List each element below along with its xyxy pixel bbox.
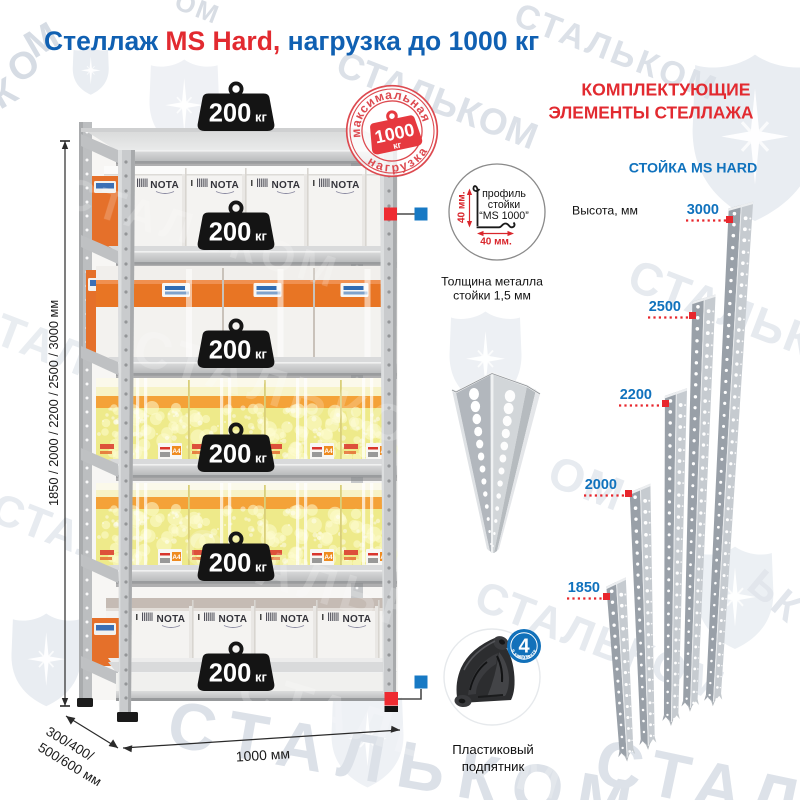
svg-text:3000: 3000 — [687, 202, 719, 218]
svg-text:2000: 2000 — [585, 477, 617, 493]
svg-text:стойки 1,5 мм: стойки 1,5 мм — [453, 289, 531, 303]
svg-text:200: 200 — [209, 441, 252, 469]
svg-text:NOTA: NOTA — [219, 614, 248, 625]
svg-text:2200: 2200 — [620, 387, 652, 403]
svg-text:40 мм.: 40 мм. — [480, 237, 512, 248]
svg-text:200: 200 — [209, 337, 252, 365]
svg-text:Стеллаж MS Hard, нагрузка до 1: Стеллаж MS Hard, нагрузка до 1000 кг — [44, 26, 539, 56]
svg-text:NOTA: NOTA — [150, 180, 179, 191]
svg-text:1000 мм: 1000 мм — [235, 745, 290, 764]
svg-text:подпятник: подпятник — [462, 759, 525, 774]
svg-text:Высота, мм: Высота, мм — [572, 204, 638, 218]
svg-text:“MS 1000”: “MS 1000” — [479, 210, 529, 222]
svg-text:кг: кг — [255, 229, 268, 244]
svg-text:NOTA: NOTA — [157, 614, 186, 625]
svg-text:NOTA: NOTA — [281, 614, 310, 625]
svg-text:NOTA: NOTA — [272, 180, 301, 191]
svg-text:200: 200 — [209, 100, 252, 128]
svg-text:кг: кг — [255, 560, 268, 575]
svg-text:Пластиковый: Пластиковый — [452, 742, 534, 757]
svg-text:штуки: штуки — [517, 654, 531, 659]
svg-text:NOTA: NOTA — [331, 180, 360, 191]
svg-text:200: 200 — [209, 550, 252, 578]
svg-text:кг: кг — [255, 110, 268, 125]
svg-text:кг: кг — [255, 347, 268, 362]
svg-text:ЭЛЕМЕНТЫ СТЕЛЛАЖА: ЭЛЕМЕНТЫ СТЕЛЛАЖА — [549, 103, 754, 123]
svg-text:2500: 2500 — [649, 299, 681, 315]
svg-text:NOTA: NOTA — [210, 180, 239, 191]
svg-text:A4: A4 — [172, 448, 181, 455]
svg-text:Толщина металла: Толщина металла — [441, 275, 543, 289]
svg-text:СТОЙКА MS HARD: СТОЙКА MS HARD — [629, 159, 758, 177]
svg-text:200: 200 — [209, 660, 252, 688]
svg-text:1850: 1850 — [568, 580, 600, 596]
svg-text:КОМПЛЕКТУЮЩИЕ: КОМПЛЕКТУЮЩИЕ — [581, 80, 750, 100]
svg-text:40 мм.: 40 мм. — [457, 191, 468, 223]
svg-text:1850 / 2000 / 2200 / 2500 / 30: 1850 / 2000 / 2200 / 2500 / 3000 мм — [46, 300, 61, 506]
svg-text:кг: кг — [255, 451, 268, 466]
svg-text:кг: кг — [255, 670, 268, 685]
svg-text:A4: A4 — [324, 448, 333, 455]
svg-text:200: 200 — [209, 219, 252, 247]
